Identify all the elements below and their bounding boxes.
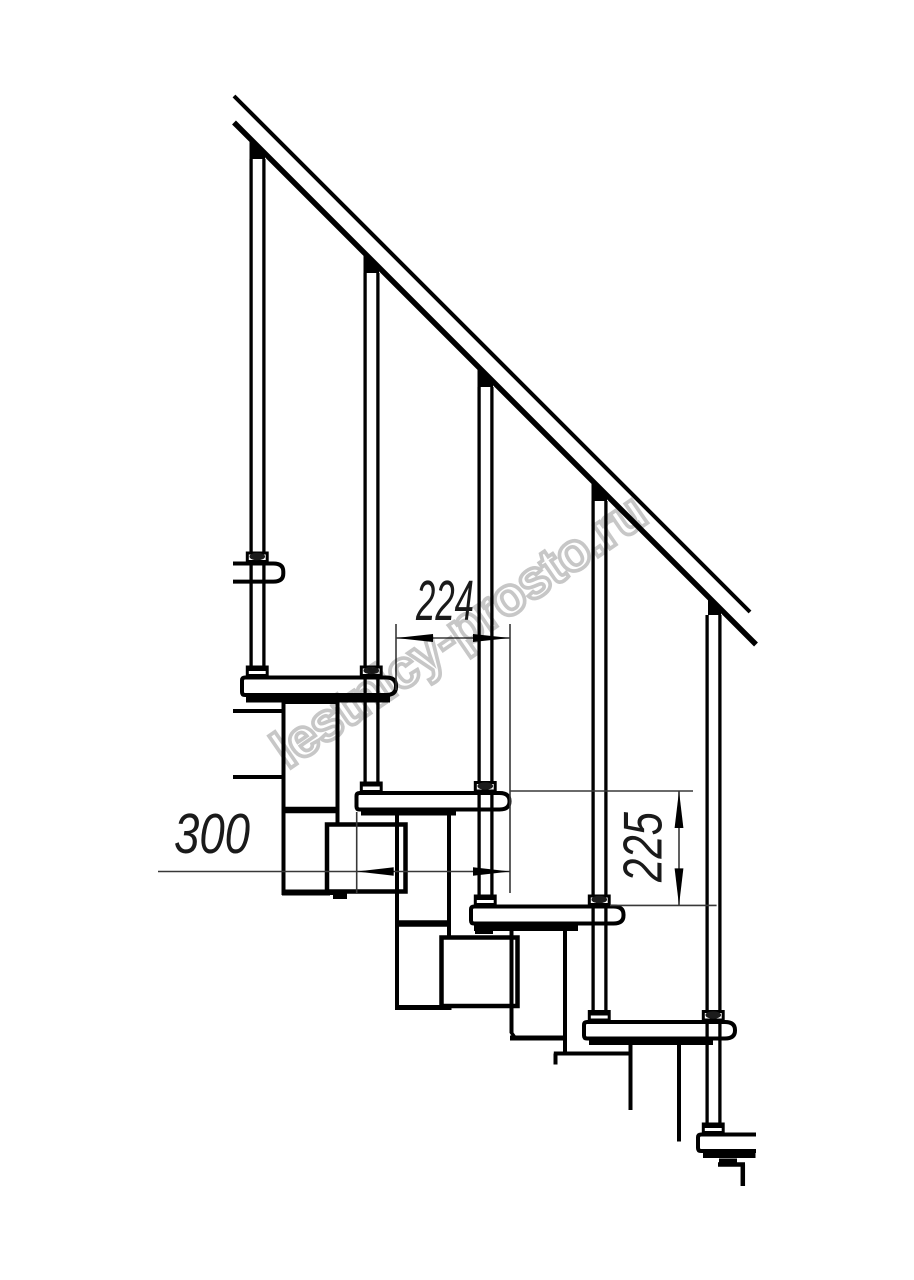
svg-text:300: 300 [174,802,250,866]
svg-text:225: 225 [612,812,674,883]
